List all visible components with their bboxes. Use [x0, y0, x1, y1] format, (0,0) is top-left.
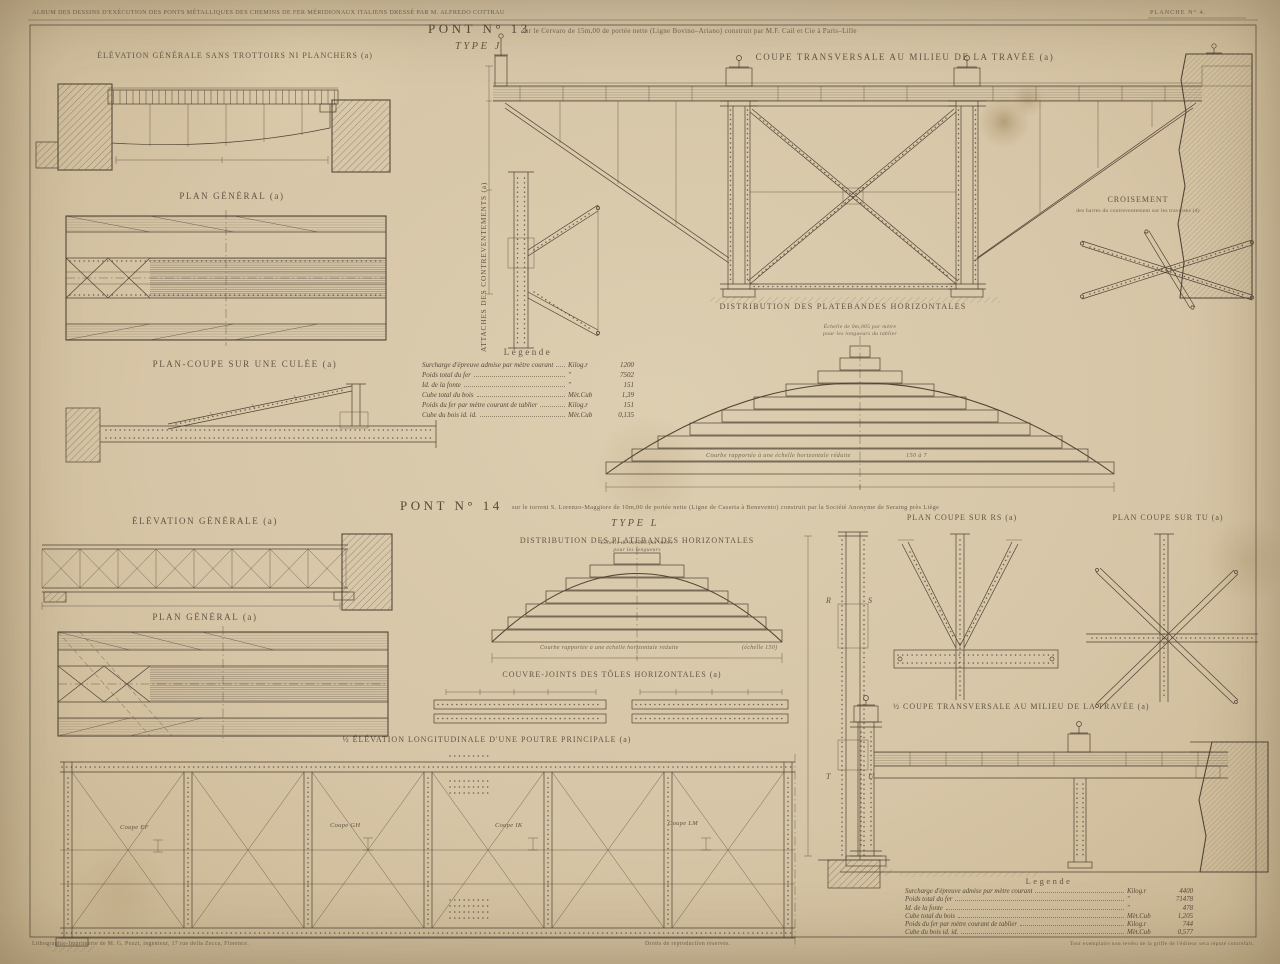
pont13-croisement-subtitle: des barres du contreventement sur les tr…: [1038, 208, 1238, 214]
legend-row-unit: Kilog.r: [1127, 921, 1163, 929]
legend-row: Poids du fer par mètre courant de tablie…: [905, 921, 1193, 929]
pont14-elevation-drawing: [42, 534, 392, 610]
legend-row-value: 0,577: [1163, 929, 1193, 937]
pont13-attaches-label: ATTACHES DES CONTREVENTEMENTS (a): [479, 182, 488, 352]
pont13-plan-coupe-drawing: [66, 384, 436, 462]
engraved-plate: ALBUM DES DESSINS D'EXÉCUTION DES PONTS …: [0, 0, 1280, 964]
pont13-scale-note-1: Échelle de 0m,005 par mètre: [795, 324, 925, 330]
coupe-ef-label: Coupe EF: [120, 824, 149, 831]
pont13-plan-drawing: [66, 210, 386, 346]
line-art: [0, 0, 1280, 964]
pont14-curve-ratio: (échelle 150): [742, 645, 777, 651]
plate-number: PLANCHE N° 4.: [1150, 9, 1206, 16]
legend-row-label: Surcharge d'épreuve admise par mètre cou…: [905, 888, 1032, 896]
legend-row-unit: Mèt.Cub: [568, 410, 604, 420]
legend-leader: [1035, 892, 1124, 893]
legend-row: Id. de la fonte″151: [422, 380, 634, 390]
legend-row-label: Cube total du bois: [905, 913, 955, 921]
legend-title: Légende: [422, 347, 634, 357]
legend-row: Cube total du boisMèt.Cub1,205: [905, 913, 1193, 921]
plate-frame: [28, 18, 1258, 937]
legend-row-value: 1200: [604, 360, 634, 370]
section-letter-u: U: [868, 772, 875, 781]
legend-leader: [958, 917, 1124, 918]
legend-row-unit: Kilog.r: [568, 360, 604, 370]
pont14-plan-coupe-rs-drawing: [894, 534, 1058, 700]
legend-row-unit: ″: [1127, 905, 1163, 913]
legend-leader: [540, 406, 565, 407]
pont13-curve-note: Courbe rapportée à une échelle horizonta…: [706, 452, 851, 459]
legend-row-unit: Mèt.Cub: [568, 390, 604, 400]
legend-row-label: Id. de la fonte: [905, 905, 943, 913]
legend-row-value: 0,135: [604, 410, 634, 420]
legend-row-unit: Kilog.r: [568, 400, 604, 410]
pont13-plan-coupe-label: PLAN-COUPE SUR UNE CULÉE (a): [120, 359, 370, 369]
album-caption: ALBUM DES DESSINS D'EXÉCUTION DES PONTS …: [32, 9, 505, 16]
footer-center: Droits de reproduction réservés.: [645, 941, 731, 947]
legend-row-label: Cube du bois id. id.: [905, 929, 958, 937]
legend-row: Surcharge d'épreuve admise par mètre cou…: [905, 888, 1193, 896]
legend-leader: [477, 396, 565, 397]
legend-leader: [961, 933, 1124, 934]
legend-row-unit: Mèt.Cub: [1127, 913, 1163, 921]
pont14-plan-rs-label: PLAN COUPE SUR RS (a): [862, 513, 1062, 522]
section-letter-s: S: [868, 596, 873, 605]
legend-row-label: Surcharge d'épreuve admise par mètre cou…: [422, 360, 553, 370]
legend-row-value: 151: [604, 380, 634, 390]
legend-row: Poids du fer par mètre courant de tablie…: [422, 400, 634, 410]
legend-row-unit: Mèt.Cub: [1127, 929, 1163, 937]
legend-row-value: 478: [1163, 905, 1193, 913]
legend-row-value: 7502: [604, 370, 634, 380]
legend-row-label: Cube du bois id. id.: [422, 410, 477, 420]
legend-row: Poids total du fer″71478: [905, 896, 1193, 904]
coupe-lm-label: Coupe LM: [668, 820, 698, 827]
footer-right: Tout exemplaire non revêtu de la griffe …: [1034, 941, 1254, 947]
legend-row: Id. de la fonte″478: [905, 905, 1193, 913]
legend-leader: [946, 909, 1124, 910]
legend-row: Surcharge d'épreuve admise par mètre cou…: [422, 360, 634, 370]
legend-row-label: Poids du fer par mètre courant de tablie…: [905, 921, 1017, 929]
legend-row-label: Poids du fer par mètre courant de tablie…: [422, 400, 537, 410]
legend-row-unit: Kilog.r: [1127, 888, 1163, 896]
legend-row-label: Poids total du fer: [905, 896, 952, 904]
legend-row: Cube du bois id. id.Mèt.Cub0,577: [905, 929, 1193, 937]
pont13-distribution-drawing: [606, 336, 1114, 492]
legend-row-label: Cube total du bois: [422, 390, 474, 400]
pont13-legend: Légende Surcharge d'épreuve admise par m…: [422, 347, 634, 420]
pont14-elevation-label: ÉLÉVATION GÉNÉRALE (a): [105, 516, 305, 526]
pont14-legend: Legende Surcharge d'épreuve admise par m…: [905, 876, 1193, 938]
legend-row: Poids total du fer″7502: [422, 370, 634, 380]
legend-row-label: Id. de la fonte: [422, 380, 461, 390]
pont14-plan-tu-label: PLAN COUPE SUR TU (a): [1068, 513, 1268, 522]
legend-leader: [556, 366, 565, 367]
legend-leader: [474, 376, 565, 377]
pont14-plan-drawing: [58, 626, 388, 742]
legend-leader: [955, 900, 1124, 901]
coupe-gh-label: Coupe GH: [330, 822, 360, 829]
legend-leader: [1020, 925, 1124, 926]
legend-row-value: 1,205: [1163, 913, 1193, 921]
legend-row-value: 1,39: [604, 390, 634, 400]
pont14-montant-drawing: [804, 532, 890, 888]
pont13-coupe-label: COUPE TRANSVERSALE AU MILIEU DE LA TRAVÉ…: [705, 52, 1105, 62]
section-letter-r: R: [826, 596, 832, 605]
pont14-subtitle: sur le torrent S. Lorenzo-Maggiore de 10…: [512, 504, 939, 511]
coupe-ik-label: Coupe IK: [495, 822, 523, 829]
pont14-plan-coupe-tu-drawing: [1086, 534, 1258, 708]
pont13-attaches-drawing: [508, 172, 600, 348]
pont14-plan-label: PLAN GÉNÉRAL (a): [115, 612, 295, 622]
pont13-croisement-title: CROISEMENT: [1038, 195, 1238, 204]
pont13-distribution-label: DISTRIBUTION DES PLATEBANDES HORIZONTALE…: [643, 302, 1043, 311]
legend-row-value: 151: [604, 400, 634, 410]
legend-leader: [464, 386, 565, 387]
pont14-type-label: TYPE L: [560, 518, 710, 529]
pont13-curve-ratio: 150 à 7: [906, 452, 927, 459]
legend-row-value: 744: [1163, 921, 1193, 929]
pont13-scale-note-2: pour les longueurs du tablier: [795, 331, 925, 337]
legend-row-unit: ″: [568, 370, 604, 380]
legend-row: Cube total du boisMèt.Cub1,39: [422, 390, 634, 400]
pont14-scale-note-2: pour les longueurs: [572, 547, 702, 553]
pont13-subtitle: sur le Cervaro de 15m,00 de portée nette…: [522, 27, 857, 35]
pont14-couvre-joints-drawing: [434, 689, 788, 723]
pont14-elevation-longitudinale-drawing: [50, 754, 795, 952]
pont13-type-label: TYPE J: [455, 41, 502, 52]
legend-row-value: 4400: [1163, 888, 1193, 896]
legend-row-unit: ″: [1127, 896, 1163, 904]
pont14-coupe-transversale-drawing: [840, 696, 1268, 878]
pont14-scale-note-1: Échelle de 0m,005 par mètre: [572, 540, 702, 546]
pont14-coupe-label: ½ COUPE TRANSVERSALE AU MILIEU DE LA TRA…: [893, 702, 1150, 711]
pont13-coupe-transversale-drawing: [485, 34, 1252, 303]
pont13-title: PONT N° 13: [428, 21, 531, 37]
legend-row-label: Poids total du fer: [422, 370, 471, 380]
section-letter-t: T: [826, 772, 832, 781]
pont14-curve-note: Courbe rapportée à une échelle horizonta…: [540, 645, 679, 651]
pont13-elevation-label: ÉLÉVATION GÉNÉRALE SANS TROTTOIRS NI PLA…: [80, 51, 390, 60]
legend-row-unit: ″: [568, 380, 604, 390]
legend-row: Cube du bois id. id.Mèt.Cub0,135: [422, 410, 634, 420]
footer-left: Lithographie-Imprimerie de M. G. Pozzi, …: [32, 941, 249, 947]
pont13-plan-label: PLAN GÉNÉRAL (a): [132, 191, 332, 201]
pont14-title: PONT N° 14: [400, 498, 503, 514]
pont14-elevation-longitudinale-label: ½ ÉLÉVATION LONGITUDINALE D'UNE POUTRE P…: [317, 735, 657, 744]
legend-title: Legende: [905, 876, 1193, 886]
legend-row-value: 71478: [1163, 896, 1193, 904]
legend-leader: [480, 416, 565, 417]
pont14-couvre-joints-label: COUVRE-JOINTS DES TÔLES HORIZONTALES (a): [462, 670, 762, 679]
